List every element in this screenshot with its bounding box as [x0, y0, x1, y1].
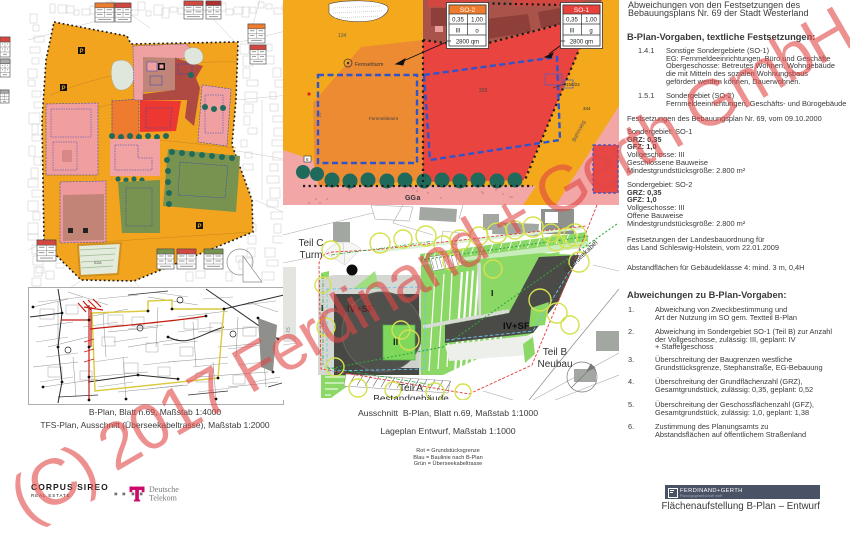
- svg-text:IV+SF: IV+SF: [503, 321, 530, 332]
- svg-text:Fernmeldeamt: Fernmeldeamt: [369, 116, 399, 121]
- svg-text:Bestandgebäude: Bestandgebäude: [373, 394, 449, 400]
- svg-text:Telekom: Telekom: [149, 494, 178, 503]
- svg-text:SO-1: SO-1: [574, 7, 590, 14]
- svg-text:134: 134: [338, 33, 347, 39]
- svg-text:III: III: [455, 29, 460, 35]
- svg-text:P: P: [198, 224, 202, 230]
- svg-text:14: 14: [317, 112, 322, 118]
- svg-text:1,00: 1,00: [471, 18, 483, 24]
- svg-text:SO-2: SO-2: [460, 7, 476, 14]
- svg-text:156/22: 156/22: [566, 82, 580, 87]
- svg-text:Teil B: Teil B: [543, 347, 568, 358]
- svg-text:Turm: Turm: [300, 250, 323, 261]
- svg-text:2800 qm: 2800 qm: [570, 40, 593, 46]
- svg-text:1,00: 1,00: [585, 18, 597, 24]
- svg-text:Teil C: Teil C: [298, 238, 323, 249]
- svg-text:52a: 52a: [94, 260, 102, 265]
- svg-text:2800 qm: 2800 qm: [456, 40, 479, 46]
- svg-text:0,35: 0,35: [452, 18, 464, 24]
- svg-text:0,35: 0,35: [566, 18, 578, 24]
- svg-text:I: I: [491, 288, 493, 298]
- svg-text:GG a: GG a: [405, 195, 420, 202]
- svg-text:P: P: [62, 86, 66, 92]
- svg-text:Fernsehturm: Fernsehturm: [355, 62, 383, 68]
- svg-text:333: 333: [479, 88, 488, 94]
- svg-text:344: 344: [583, 106, 591, 111]
- svg-text:g: g: [589, 29, 592, 35]
- svg-text:III: III: [569, 29, 574, 35]
- svg-text:P: P: [80, 49, 84, 55]
- svg-text:Teil A: Teil A: [399, 383, 423, 394]
- svg-text:Neubau: Neubau: [537, 359, 572, 370]
